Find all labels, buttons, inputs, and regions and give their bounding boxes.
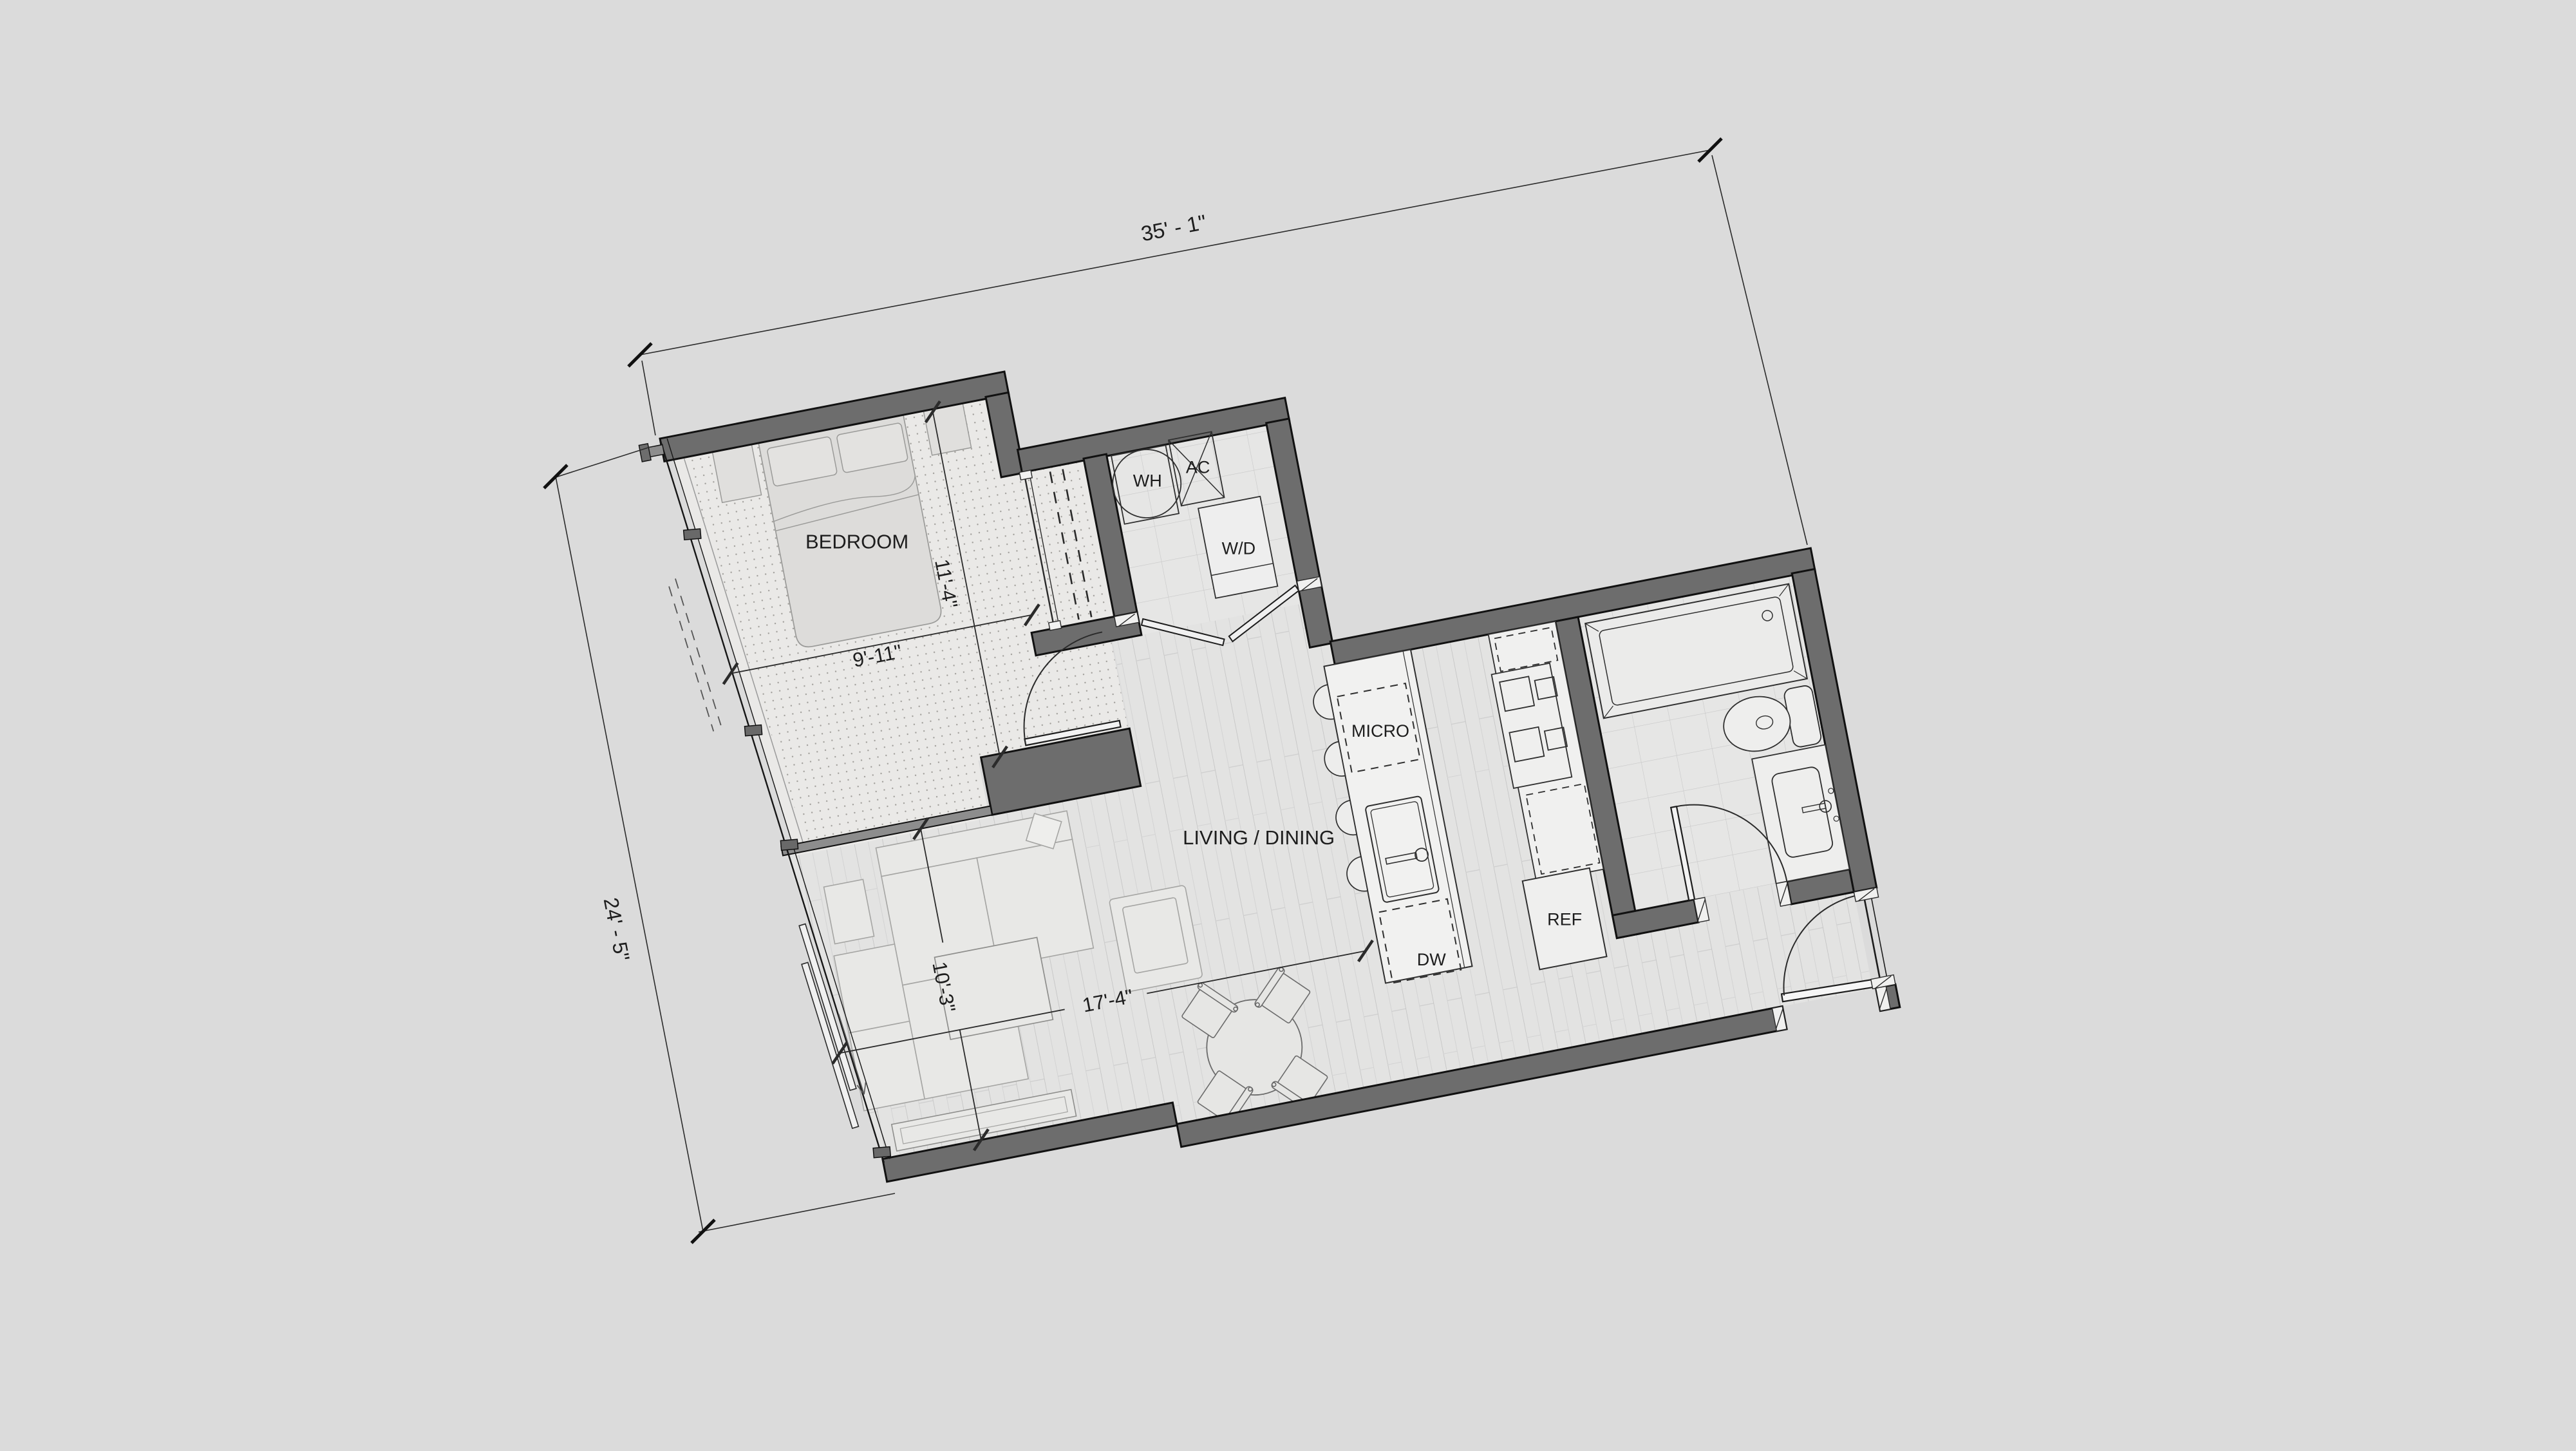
svg-text:REF: REF xyxy=(1547,910,1582,929)
svg-text:AC: AC xyxy=(1186,457,1210,477)
svg-text:DW: DW xyxy=(1417,950,1446,969)
svg-text:LIVING / DINING: LIVING / DINING xyxy=(1183,826,1335,849)
svg-text:BEDROOM: BEDROOM xyxy=(805,531,908,553)
svg-text:MICRO: MICRO xyxy=(1351,721,1409,741)
svg-text:WH: WH xyxy=(1133,471,1162,491)
svg-text:W/D: W/D xyxy=(1222,539,1255,558)
